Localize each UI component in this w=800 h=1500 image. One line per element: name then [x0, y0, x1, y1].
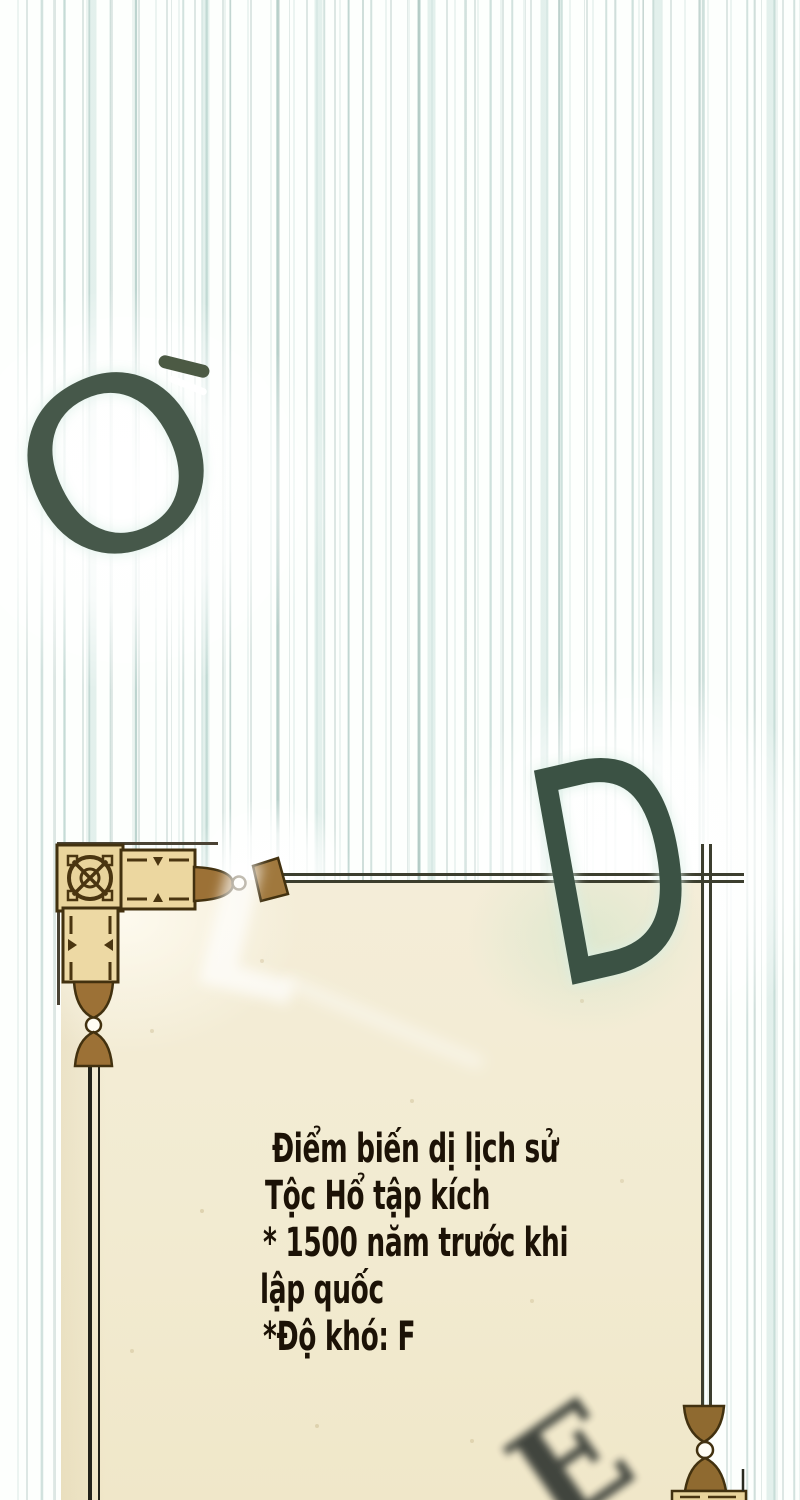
- ornament-panel-horizontal: [121, 850, 195, 909]
- caption-line: *Độ khó: F: [263, 1314, 525, 1361]
- scroll-corner-ornament-bottom-right: [660, 1400, 760, 1500]
- scroll-border-left: [88, 1064, 92, 1500]
- caption-line: Tộc Hổ tập kích: [265, 1173, 526, 1220]
- ornament-hourglass-right: [684, 1406, 726, 1491]
- scroll-border-left: [98, 1064, 100, 1500]
- caption-line: lập quốc: [260, 1267, 524, 1314]
- ornament-hourglass-left: [74, 982, 113, 1066]
- scroll-border-right: [709, 844, 712, 1406]
- ornament-base-plate: [672, 1491, 746, 1500]
- history-mutation-caption: Điểm biến dị lịch sử Tộc Hổ tập kích * 1…: [260, 1126, 660, 1361]
- ornament-panel-vertical: [63, 908, 118, 982]
- caption-line: Điểm biến dị lịch sử: [272, 1126, 528, 1173]
- comic-panel: L Điểm biến dị lịch sử Tộc Hổ tập kích *…: [0, 0, 800, 1500]
- celtic-knot-square: [57, 845, 123, 911]
- caption-line: * 1500 năm trước khi: [263, 1220, 525, 1267]
